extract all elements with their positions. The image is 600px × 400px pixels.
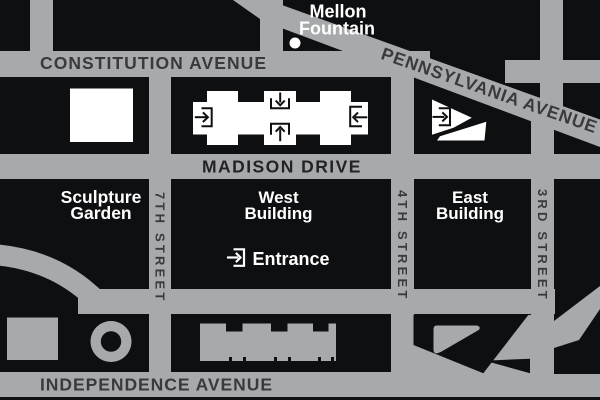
svg-text:7TH STREET: 7TH STREET	[153, 192, 168, 303]
svg-text:Fountain: Fountain	[299, 19, 375, 39]
svg-text:Entrance: Entrance	[253, 249, 330, 269]
svg-text:Building: Building	[436, 204, 504, 223]
svg-text:4TH STREET: 4TH STREET	[395, 190, 410, 301]
svg-text:CONSTITUTION AVENUE: CONSTITUTION AVENUE	[40, 53, 267, 73]
svg-text:Garden: Garden	[70, 203, 131, 223]
svg-text:INDEPENDENCE AVENUE: INDEPENDENCE AVENUE	[40, 375, 273, 395]
svg-text:MADISON DRIVE: MADISON DRIVE	[202, 157, 362, 177]
svg-text:Building: Building	[245, 204, 313, 223]
svg-text:3RD STREET: 3RD STREET	[535, 189, 550, 302]
